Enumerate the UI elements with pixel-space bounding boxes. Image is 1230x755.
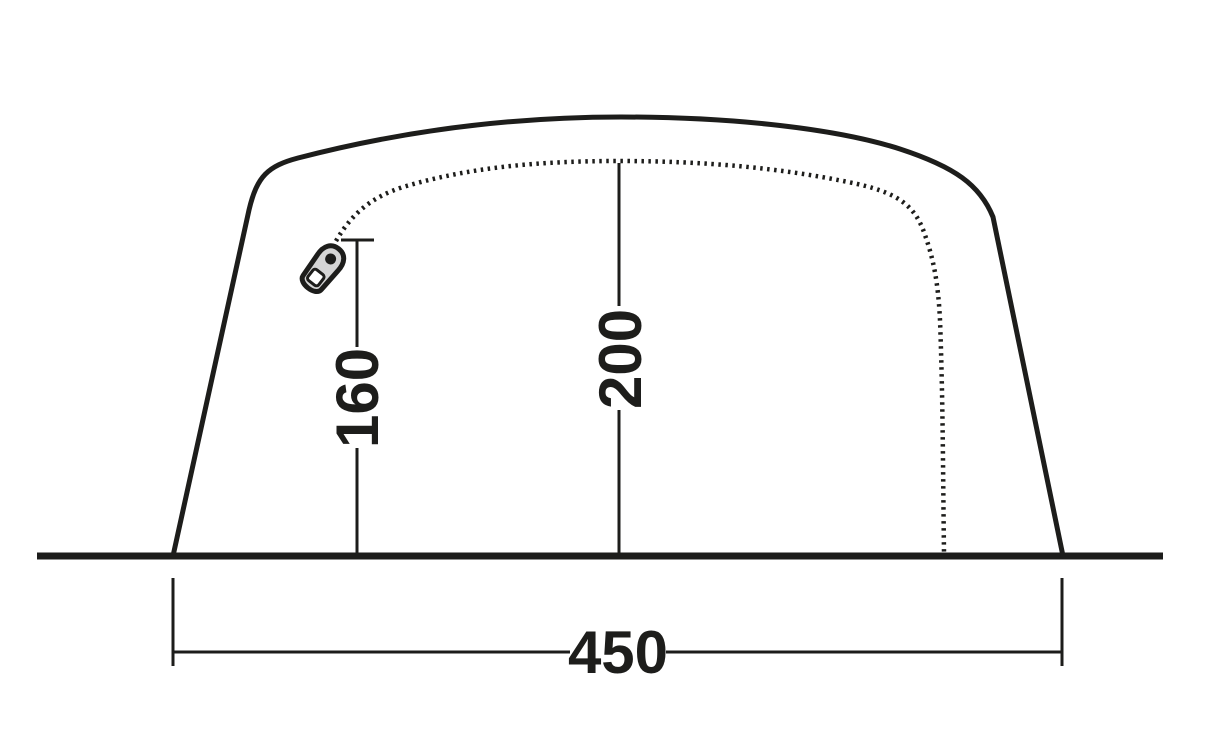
diagram-canvas: 160 200 450 (0, 0, 1230, 755)
dim-450-label: 450 (568, 619, 668, 686)
tent-dimension-diagram: 160 200 450 (0, 0, 1230, 755)
dimension-center-height: 200 (587, 163, 654, 554)
dim-160-label: 160 (324, 348, 391, 448)
dim-200-label: 200 (587, 309, 654, 409)
zipper-pull-body (298, 241, 349, 296)
zipper-pull-icon (298, 241, 349, 296)
dimension-zip-height: 160 (324, 240, 391, 554)
dimension-base-width: 450 (173, 578, 1062, 686)
